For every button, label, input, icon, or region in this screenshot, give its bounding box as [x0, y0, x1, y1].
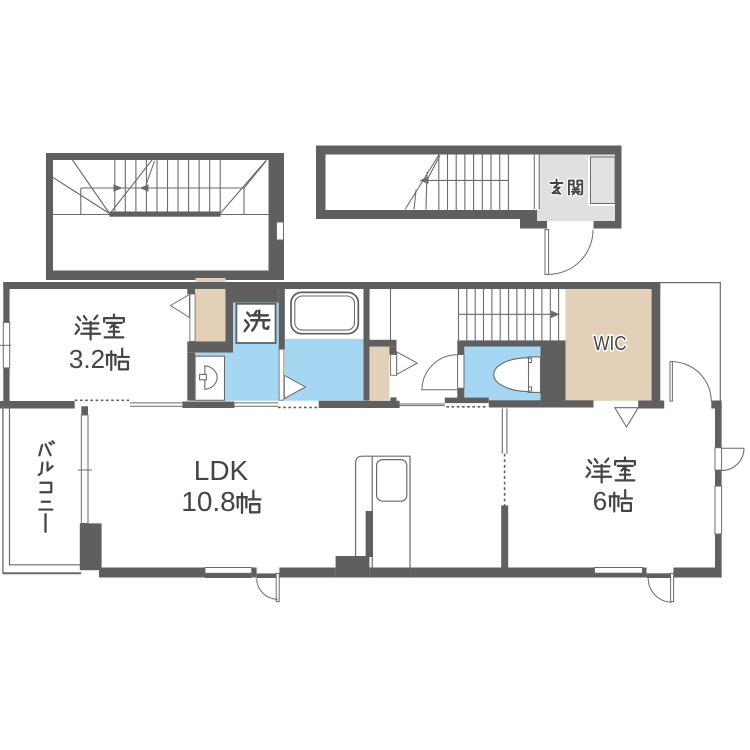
svg-text:6: 6 [593, 486, 607, 516]
svg-text:3.2: 3.2 [69, 344, 105, 374]
svg-text:LDK: LDK [194, 455, 249, 486]
svg-text:WIC: WIC [594, 333, 627, 355]
svg-text:10.8: 10.8 [181, 486, 236, 517]
